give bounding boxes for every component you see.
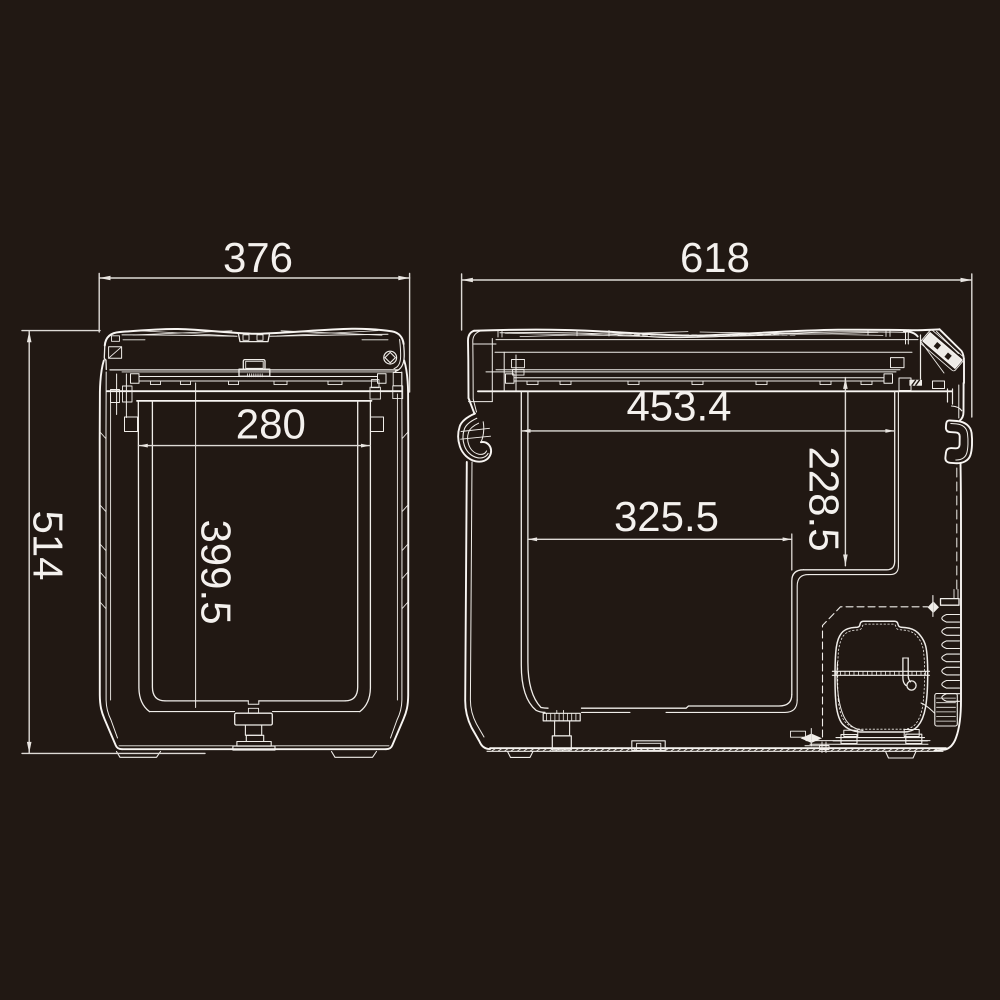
svg-text:514: 514 xyxy=(25,510,72,580)
svg-text:325.5: 325.5 xyxy=(614,493,719,540)
svg-text:280: 280 xyxy=(236,401,306,448)
svg-text:228.5: 228.5 xyxy=(801,446,848,551)
svg-text:618: 618 xyxy=(680,234,750,281)
svg-text:399.5: 399.5 xyxy=(193,519,240,624)
svg-text:376: 376 xyxy=(223,234,293,281)
svg-text:453.4: 453.4 xyxy=(626,383,731,430)
